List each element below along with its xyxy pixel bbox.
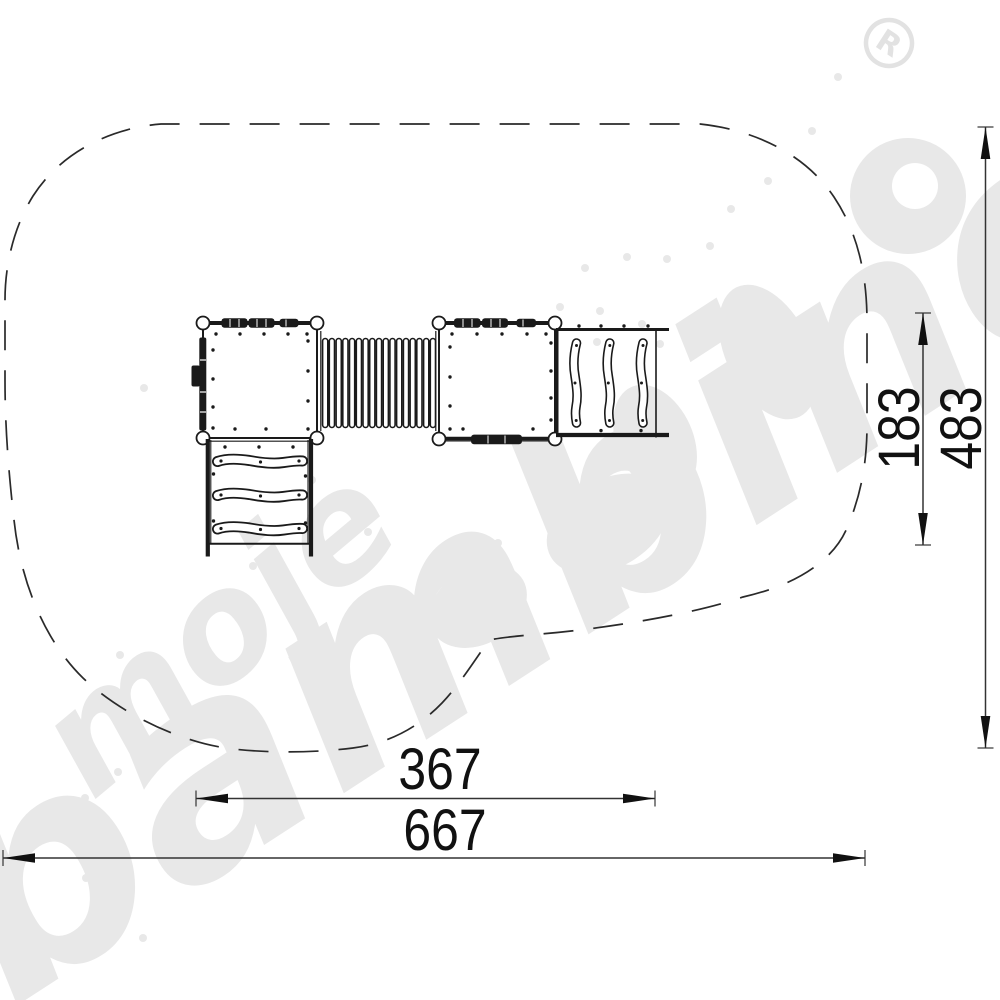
climbing-handle: [574, 343, 579, 423]
structure-depth-label: 183: [868, 386, 932, 469]
brand-watermark: moje bambino R: [0, 11, 1000, 1000]
ramp-step: [218, 493, 303, 497]
crawl-tunnel: [323, 339, 436, 428]
total-depth-label: 483: [930, 386, 994, 469]
arrow-down-icon: [981, 716, 991, 748]
arrow-right-icon: [623, 794, 655, 804]
total-width-label: 667: [403, 799, 486, 863]
arrow-down-icon: [918, 513, 928, 545]
playground-plan-page: moje bambino R: [0, 0, 1000, 1000]
arrow-right-icon: [833, 853, 865, 863]
right-platform: [433, 317, 562, 446]
left-platform: [192, 317, 324, 445]
left-climber: [192, 338, 207, 431]
ramp-step: [218, 459, 303, 463]
playground-plan-drawing: moje bambino R: [0, 0, 1000, 1000]
structure-width-label: 367: [398, 738, 481, 802]
registered-trademark-icon: R: [857, 11, 921, 75]
ramp-step: [218, 527, 303, 531]
climbing-handle: [607, 343, 612, 423]
climbing-handle: [640, 343, 645, 423]
